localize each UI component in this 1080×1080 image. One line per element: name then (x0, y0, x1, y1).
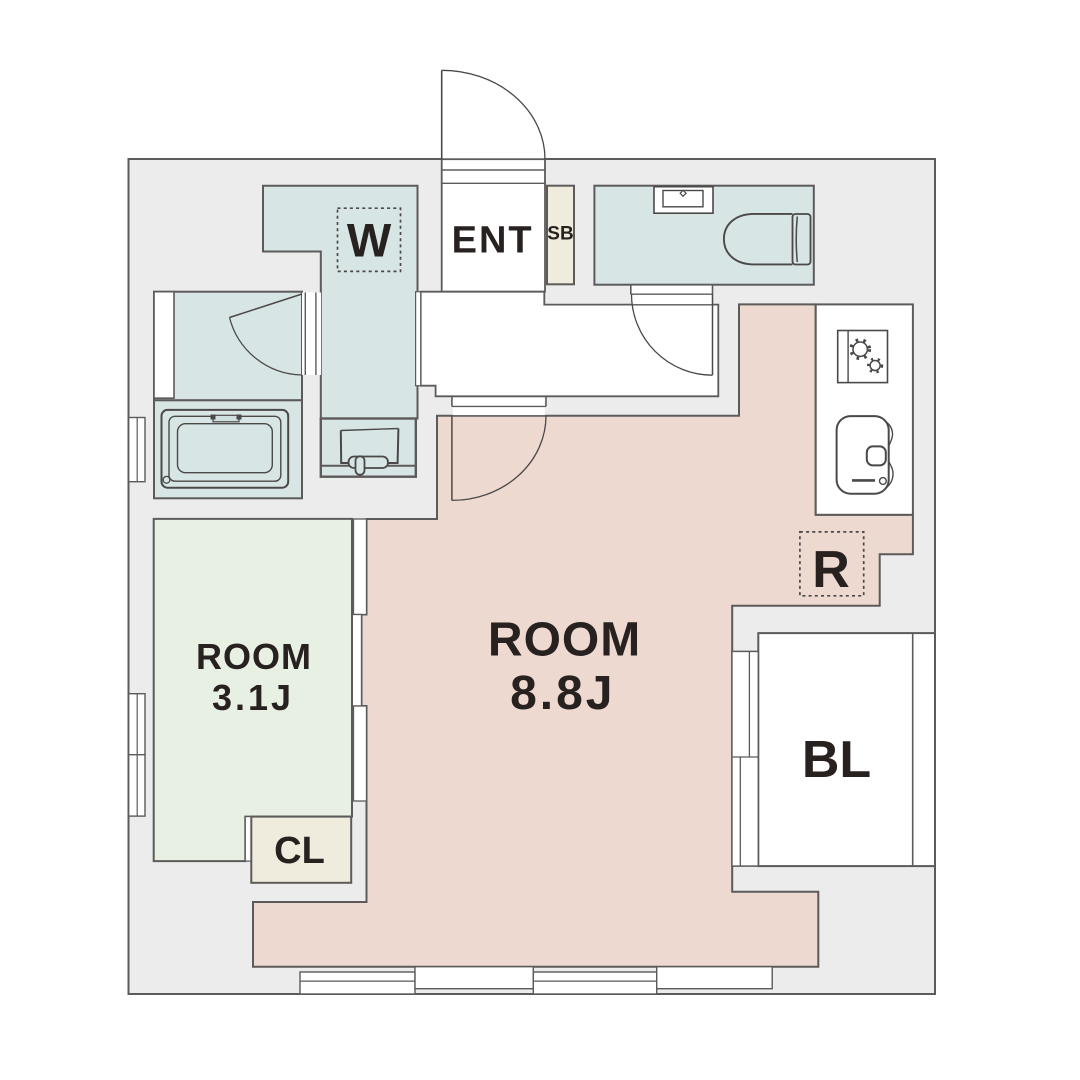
svg-text:ROOM: ROOM (196, 636, 312, 677)
svg-text:W: W (347, 214, 392, 267)
svg-text:SB: SB (547, 224, 573, 245)
svg-text:ROOM: ROOM (488, 614, 641, 667)
svg-text:BL: BL (802, 731, 871, 789)
svg-text:ENT: ENT (452, 220, 534, 262)
svg-text:CL: CL (274, 830, 325, 872)
svg-text:3.1J: 3.1J (212, 677, 294, 718)
svg-text:8.8J: 8.8J (510, 667, 615, 720)
svg-text:R: R (812, 541, 850, 599)
